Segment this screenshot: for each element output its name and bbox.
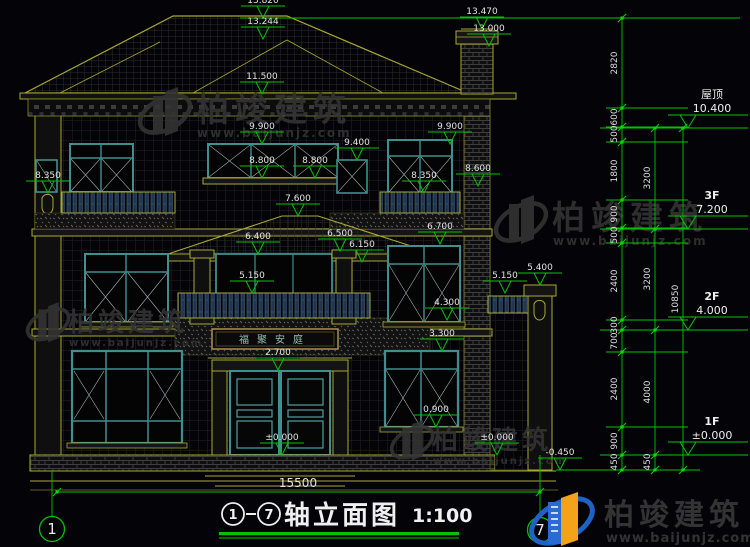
svg-text:柏竣建筑: 柏竣建筑 xyxy=(68,307,188,338)
window-sill-band xyxy=(203,178,343,184)
svg-text:7: 7 xyxy=(535,521,545,539)
level-marker: 5.400 xyxy=(518,263,562,285)
svg-text:-0.450: -0.450 xyxy=(545,448,574,458)
svg-text:500: 500 xyxy=(610,226,620,243)
svg-text:7.600: 7.600 xyxy=(285,194,311,204)
svg-text:5.400: 5.400 xyxy=(527,263,553,273)
svg-text:8.600: 8.600 xyxy=(465,164,491,174)
window xyxy=(72,351,182,443)
title-axis-start: 1 xyxy=(228,508,237,523)
svg-text:2820: 2820 xyxy=(610,51,620,74)
svg-text:5.150: 5.150 xyxy=(492,271,518,281)
svg-text:13.244: 13.244 xyxy=(247,17,279,27)
svg-text:5.150: 5.150 xyxy=(239,271,265,281)
svg-text:6.150: 6.150 xyxy=(349,240,375,250)
svg-text:4.300: 4.300 xyxy=(434,298,460,308)
baijun-logo-icon xyxy=(524,490,599,547)
window xyxy=(216,254,332,294)
svg-text:700: 700 xyxy=(610,332,620,349)
svg-text:3F: 3F xyxy=(704,189,719,202)
svg-text:13.000: 13.000 xyxy=(473,24,505,34)
chimney xyxy=(456,29,498,94)
floor-level-marker: 1F±0.000 xyxy=(668,415,748,455)
svg-text:4000: 4000 xyxy=(643,380,653,403)
svg-text:900: 900 xyxy=(610,432,620,449)
svg-text:450: 450 xyxy=(610,453,620,470)
svg-text:3.300: 3.300 xyxy=(429,329,455,339)
svg-text:3200: 3200 xyxy=(643,267,653,290)
balcony-railing xyxy=(380,192,460,213)
title-axis-end: 7 xyxy=(264,508,273,523)
svg-text:600: 600 xyxy=(610,108,620,125)
svg-text:±0.000: ±0.000 xyxy=(265,433,299,443)
svg-text:10850: 10850 xyxy=(671,284,681,313)
svg-text:2F: 2F xyxy=(704,290,719,303)
svg-text:2400: 2400 xyxy=(610,377,620,400)
dimension-chain: 10850 xyxy=(671,124,687,474)
svg-text:8.800: 8.800 xyxy=(249,156,275,166)
svg-text:8.800: 8.800 xyxy=(302,156,328,166)
svg-text:6.500: 6.500 xyxy=(327,229,353,239)
svg-text:300: 300 xyxy=(610,316,620,333)
svg-text:1F: 1F xyxy=(704,415,719,428)
svg-text:11.500: 11.500 xyxy=(246,72,278,82)
svg-text:柏竣建筑: 柏竣建筑 xyxy=(552,198,708,237)
svg-text:6.400: 6.400 xyxy=(245,232,271,242)
drawing-title: 轴立面图 xyxy=(284,500,400,531)
balcony-railing xyxy=(62,192,175,213)
svg-text:2400: 2400 xyxy=(610,269,620,292)
svg-text:450: 450 xyxy=(643,453,653,470)
overall-width-dimension: 15500 xyxy=(53,476,544,496)
svg-text:13.820: 13.820 xyxy=(247,0,279,6)
elevation-drawing: 福聚安庭 xyxy=(0,0,750,547)
svg-text:15500: 15500 xyxy=(279,476,317,490)
baijun-logo: 柏竣建筑 www.baijunjz.com xyxy=(524,490,750,547)
svg-text:900: 900 xyxy=(610,205,620,222)
svg-text:10.400: 10.400 xyxy=(693,102,732,115)
svg-text:www.baijunjz.com: www.baijunjz.com xyxy=(553,234,708,248)
svg-text:6.700: 6.700 xyxy=(427,222,453,232)
svg-text:500: 500 xyxy=(610,125,620,142)
svg-text:2.700: 2.700 xyxy=(265,348,291,358)
svg-text:1800: 1800 xyxy=(610,159,620,182)
balcony-railing xyxy=(178,293,370,318)
svg-text:8.350: 8.350 xyxy=(411,171,437,181)
svg-text:9.400: 9.400 xyxy=(344,138,370,148)
title-block: 1 7 轴立面图 1:100 xyxy=(219,500,472,538)
dimension-chain: 320032004000450 xyxy=(643,124,659,474)
drawing-scale: 1:100 xyxy=(412,505,472,527)
svg-text:13.470: 13.470 xyxy=(466,7,498,17)
svg-text:www.baijunjz.com: www.baijunjz.com xyxy=(606,531,750,546)
watermark: 柏竣建筑 www.baijunjz.com xyxy=(490,195,708,248)
cad-elevation-canvas: 福聚安庭 xyxy=(0,0,750,547)
svg-text:7.200: 7.200 xyxy=(696,203,728,216)
svg-text:1: 1 xyxy=(47,520,57,538)
svg-text:4.000: 4.000 xyxy=(696,304,728,317)
svg-text:8.350: 8.350 xyxy=(35,171,61,181)
svg-text:屋顶: 屋顶 xyxy=(701,88,723,101)
svg-text:www.baijunjz.com: www.baijunjz.com xyxy=(69,338,203,349)
svg-text:±0.000: ±0.000 xyxy=(480,433,514,443)
level-marker: 13.820 xyxy=(241,0,285,18)
svg-text:0.900: 0.900 xyxy=(423,405,449,415)
svg-text:±0.000: ±0.000 xyxy=(692,429,733,442)
svg-text:3200: 3200 xyxy=(643,166,653,189)
fence-railing xyxy=(488,296,530,313)
svg-text:9.900: 9.900 xyxy=(437,122,463,132)
svg-text:9.900: 9.900 xyxy=(249,122,275,132)
name-plaque: 福聚安庭 xyxy=(212,329,338,349)
plaque-text: 福聚安庭 xyxy=(239,333,311,346)
svg-text:柏竣建筑: 柏竣建筑 xyxy=(604,498,744,533)
